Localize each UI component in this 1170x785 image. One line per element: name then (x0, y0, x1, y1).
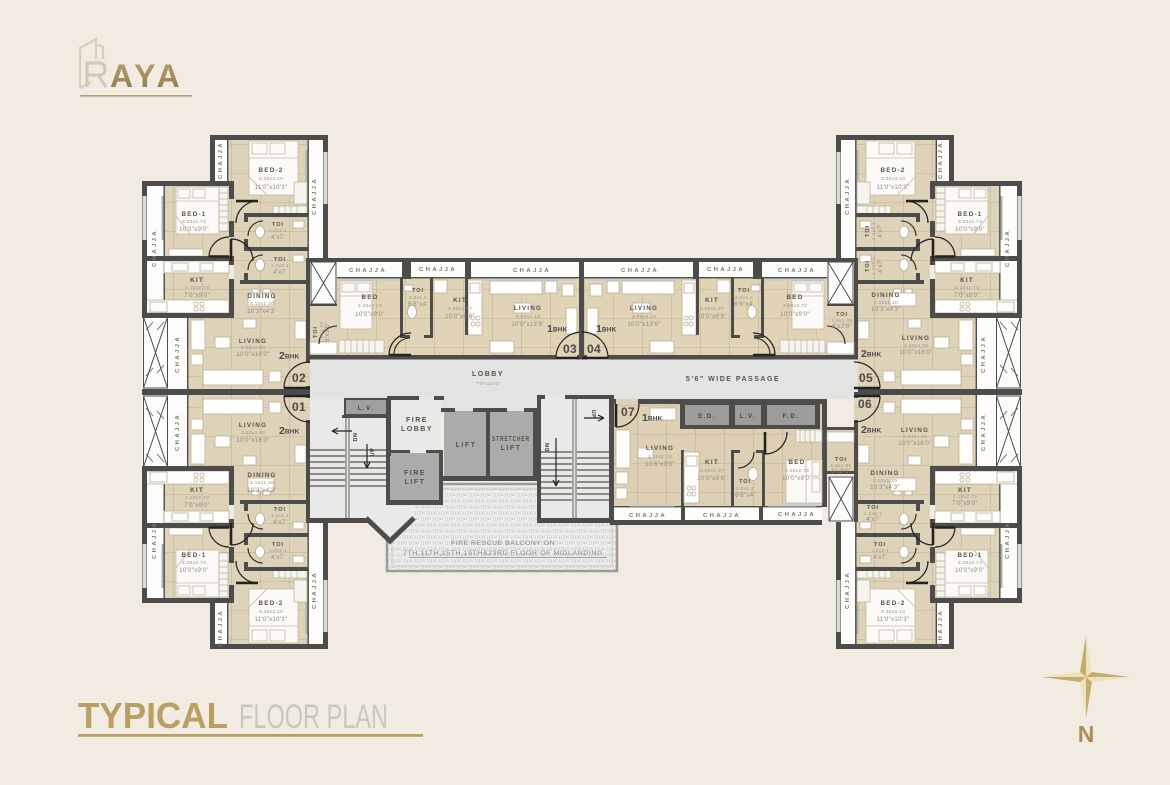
svg-text:4'x7': 4'x7' (866, 516, 880, 523)
svg-text:LIVING: LIVING (514, 305, 542, 312)
svg-text:LIVING: LIVING (646, 445, 674, 452)
svg-text:BED: BED (787, 294, 804, 301)
svg-text:CHAJJA: CHAJJA (175, 335, 181, 373)
svg-text:CHAJJA: CHAJJA (703, 513, 741, 519)
svg-text:11'0"x10'3": 11'0"x10'3" (877, 184, 910, 191)
svg-text:TOI: TOI (835, 457, 847, 463)
svg-text:LIVING: LIVING (901, 427, 929, 434)
svg-text:CHAJJA: CHAJJA (152, 521, 158, 559)
svg-text:KIT: KIT (190, 277, 204, 284)
svg-text:5'6" WIDE PASSAGE: 5'6" WIDE PASSAGE (686, 376, 780, 383)
svg-text:3.03x2.73: 3.03x2.73 (958, 219, 982, 225)
svg-text:KIT: KIT (453, 297, 467, 304)
svg-text:13'6"x9'0": 13'6"x9'0" (645, 461, 675, 468)
svg-text:CHAJJA: CHAJJA (312, 177, 318, 215)
svg-text:CHAJJA: CHAJJA (845, 571, 851, 609)
svg-text:BED-2: BED-2 (881, 600, 906, 607)
svg-text:4'x7': 4'x7' (271, 554, 285, 561)
svg-text:LIVING: LIVING (902, 335, 930, 342)
svg-text:4.11x2.73: 4.11x2.73 (648, 454, 672, 460)
svg-text:LIVING: LIVING (239, 422, 267, 429)
svg-text:CHAJJA: CHAJJA (938, 609, 944, 647)
svg-text:DINING: DINING (247, 293, 276, 300)
svg-text:7'0"x12'6": 7'0"x12'6" (476, 381, 500, 387)
svg-text:10'0"x6'6": 10'0"x6'6" (697, 313, 727, 320)
svg-text:3.35x3.10: 3.35x3.10 (881, 609, 905, 615)
svg-text:TOI: TOI (274, 257, 286, 263)
svg-text:DN: DN (353, 433, 359, 442)
svg-text:6'6"x4': 6'6"x4' (735, 492, 755, 499)
svg-text:10'0"x9'0": 10'0"x9'0" (780, 311, 810, 318)
svg-text:10'0"x9'0": 10'0"x9'0" (179, 567, 209, 574)
svg-text:FIRE RESCUE BALCONY ON: FIRE RESCUE BALCONY ON (451, 540, 555, 547)
svg-text:7'0"x9'0": 7'0"x9'0" (184, 502, 210, 509)
svg-text:01: 01 (292, 400, 306, 414)
svg-text:TOI: TOI (739, 479, 751, 485)
svg-text:CHAJJA: CHAJJA (1005, 521, 1011, 559)
svg-text:4'x7': 4'x7' (877, 259, 884, 273)
svg-text:DN: DN (545, 443, 551, 452)
svg-text:CHAJJA: CHAJJA (218, 141, 224, 179)
svg-text:6'6"x4': 6'6"x4' (734, 301, 754, 308)
svg-text:KIT: KIT (705, 459, 719, 466)
svg-text:10'0"x9'0": 10'0"x9'0" (955, 567, 985, 574)
svg-text:10'0"x16'0": 10'0"x16'0" (236, 351, 269, 358)
svg-text:10'3"x4'3": 10'3"x4'3" (870, 484, 900, 491)
svg-text:02: 02 (292, 371, 306, 385)
svg-text:CHAJJA: CHAJJA (349, 268, 387, 274)
svg-text:4'x7': 4'x7' (271, 234, 285, 241)
svg-text:CHAJJA: CHAJJA (621, 268, 659, 274)
svg-text:3.00x4.10: 3.00x4.10 (632, 314, 656, 320)
svg-text:KIT: KIT (960, 277, 974, 284)
svg-text:3.03x2.73: 3.03x2.73 (958, 560, 982, 566)
svg-text:LIVING: LIVING (630, 305, 658, 312)
svg-text:FIRE: FIRE (406, 417, 428, 424)
svg-text:DINING: DINING (247, 472, 276, 479)
svg-text:10'0"x16'0": 10'0"x16'0" (899, 349, 932, 356)
svg-text:10'3"x4'3": 10'3"x4'3" (247, 487, 277, 494)
svg-text:TOI: TOI (272, 542, 284, 548)
svg-text:7'0"x9'0": 7'0"x9'0" (184, 292, 210, 299)
svg-text:3.03x4.90: 3.03x4.90 (241, 430, 265, 436)
svg-text:N: N (1078, 721, 1095, 747)
svg-text:10'3"x4'3": 10'3"x4'3" (871, 306, 901, 313)
svg-text:L.V.: L.V. (740, 414, 756, 420)
svg-text:CHAJJA: CHAJJA (981, 413, 987, 451)
svg-text:6'6"x4': 6'6"x4' (408, 301, 428, 308)
svg-text:CHAJJA: CHAJJA (629, 513, 667, 519)
svg-text:FIRE: FIRE (404, 470, 426, 477)
svg-text:CHAJJA: CHAJJA (152, 229, 158, 267)
svg-text:4'x7': 4'x7' (877, 224, 884, 238)
svg-text:LIVING: LIVING (239, 338, 267, 345)
svg-text:TOI: TOI (867, 505, 879, 511)
svg-text:BED: BED (789, 459, 806, 466)
svg-text:4'x7': 4'x7' (873, 554, 887, 561)
svg-text:KIT: KIT (190, 487, 204, 494)
svg-text:BED-1: BED-1 (182, 211, 207, 218)
svg-text:LIFT: LIFT (501, 445, 522, 452)
svg-text:CHAJJA: CHAJJA (175, 413, 181, 451)
svg-text:STRETCHER: STRETCHER (492, 436, 530, 443)
svg-text:TOI: TOI (274, 507, 286, 513)
svg-text:6'x3'6": 6'x3'6" (832, 323, 852, 330)
svg-text:TOI: TOI (865, 225, 871, 237)
svg-text:3.35x3.10: 3.35x3.10 (259, 609, 283, 615)
svg-text:3.10x1.30: 3.10x1.30 (250, 301, 274, 307)
svg-text:7'0"x9'0": 7'0"x9'0" (954, 292, 980, 299)
svg-text:3.00x2.73: 3.00x2.73 (783, 303, 807, 309)
svg-text:CHAJJA: CHAJJA (938, 141, 944, 179)
svg-text:10'0"x16'0": 10'0"x16'0" (236, 437, 269, 444)
svg-text:BED-2: BED-2 (259, 600, 284, 607)
svg-text:4'x7': 4'x7' (273, 519, 287, 526)
svg-text:11'0"x10'3": 11'0"x10'3" (255, 616, 288, 623)
svg-text:BED: BED (362, 294, 379, 301)
svg-text:10'3"x4'3": 10'3"x4'3" (247, 308, 277, 315)
svg-text:CHAJJA: CHAJJA (981, 335, 987, 373)
svg-text:2.10x2.73: 2.10x2.73 (185, 495, 209, 501)
svg-text:04: 04 (587, 342, 601, 356)
svg-text:DINING: DINING (871, 292, 900, 299)
svg-text:10'0"x13'6": 10'0"x13'6" (511, 321, 544, 328)
svg-text:CHAJJA: CHAJJA (419, 267, 457, 273)
svg-text:2.10x2.73: 2.10x2.73 (955, 285, 979, 291)
svg-text:TOI: TOI (313, 326, 319, 338)
svg-text:10'0"x9'0": 10'0"x9'0" (782, 475, 812, 482)
svg-text:10'0"x6'6": 10'0"x6'6" (697, 475, 727, 482)
svg-text:6'x3'6": 6'x3'6" (831, 468, 851, 475)
svg-text:3.00x2.73: 3.00x2.73 (358, 303, 382, 309)
svg-text:2.10x2.73: 2.10x2.73 (185, 285, 209, 291)
svg-text:TYPICAL: TYPICAL (78, 695, 228, 736)
svg-text:10'0"x9'0": 10'0"x9'0" (355, 311, 385, 318)
svg-text:LIFT: LIFT (456, 442, 477, 449)
svg-text:11'0"x10'3": 11'0"x10'3" (255, 184, 288, 191)
svg-text:L.V.: L.V. (358, 406, 374, 412)
svg-text:F.D.: F.D. (783, 414, 800, 420)
svg-text:10'0"x13'6": 10'0"x13'6" (627, 321, 660, 328)
svg-text:CHAJJA: CHAJJA (1005, 229, 1011, 267)
svg-text:BED-2: BED-2 (881, 167, 906, 174)
svg-text:10'0"x9'0": 10'0"x9'0" (179, 226, 209, 233)
svg-text:CHAJJA: CHAJJA (845, 177, 851, 215)
svg-text:UP: UP (590, 410, 596, 419)
svg-text:10'0"x9'0": 10'0"x9'0" (955, 226, 985, 233)
svg-text:FLOOR PLAN: FLOOR PLAN (239, 698, 388, 736)
svg-text:05: 05 (859, 371, 873, 385)
svg-text:LOBBY: LOBBY (472, 371, 504, 378)
svg-text:CHAJJA: CHAJJA (778, 512, 816, 518)
svg-text:TOI: TOI (836, 312, 848, 318)
svg-text:TOI: TOI (272, 222, 284, 228)
svg-text:LIFT: LIFT (405, 479, 426, 486)
svg-text:3.35x3.10: 3.35x3.10 (259, 176, 283, 182)
svg-text:3.00x1.97: 3.00x1.97 (700, 468, 724, 474)
svg-text:TOI: TOI (874, 542, 886, 548)
svg-text:UP: UP (370, 448, 376, 457)
svg-text:CHAJJA: CHAJJA (778, 268, 816, 274)
svg-text:KIT: KIT (958, 487, 972, 494)
svg-text:3.03x2.73: 3.03x2.73 (182, 219, 206, 225)
svg-text:6'x3'6": 6'x3'6" (324, 322, 331, 342)
svg-text:TOI: TOI (865, 260, 871, 272)
svg-text:3.00x4.10: 3.00x4.10 (516, 314, 540, 320)
svg-text:CHAJJA: CHAJJA (707, 267, 745, 273)
svg-text:AYA: AYA (110, 58, 184, 94)
svg-text:CHAJJA: CHAJJA (513, 268, 551, 274)
svg-text:3.00x1.97: 3.00x1.97 (700, 306, 724, 312)
svg-text:TOI: TOI (412, 288, 424, 294)
svg-text:LOBBY: LOBBY (401, 426, 433, 433)
svg-text:TOI: TOI (738, 288, 750, 294)
svg-text:10'0"x16'0": 10'0"x16'0" (898, 440, 931, 447)
svg-text:4'x7': 4'x7' (273, 269, 287, 276)
svg-text:7'0"x9'0": 7'0"x9'0" (952, 500, 978, 507)
svg-text:06: 06 (858, 397, 872, 411)
svg-text:11'0"x10'3": 11'0"x10'3" (877, 616, 910, 623)
svg-text:KIT: KIT (705, 297, 719, 304)
svg-text:3.00x2.73: 3.00x2.73 (785, 468, 809, 474)
svg-text:3.00x1.97: 3.00x1.97 (448, 306, 472, 312)
svg-text:DINING: DINING (870, 470, 899, 477)
svg-text:03: 03 (563, 342, 577, 356)
svg-text:07: 07 (621, 405, 635, 419)
svg-text:3.03x2.73: 3.03x2.73 (182, 560, 206, 566)
svg-text:BED-2: BED-2 (259, 167, 284, 174)
svg-text:BED-1: BED-1 (958, 211, 983, 218)
svg-text:7TH,11TH,15TH,19TH&23RD FLOOR: 7TH,11TH,15TH,19TH&23RD FLOOR OF MIDLAND… (403, 550, 603, 557)
svg-text:3.10x1.30: 3.10x1.30 (250, 480, 274, 486)
svg-text:E.D.: E.D. (698, 414, 716, 420)
svg-text:CHAJJA: CHAJJA (218, 609, 224, 647)
svg-text:10'0"x6'6": 10'0"x6'6" (445, 313, 475, 320)
svg-text:BED-1: BED-1 (958, 552, 983, 559)
svg-text:CHAJJA: CHAJJA (312, 571, 318, 609)
svg-text:3.35x3.10: 3.35x3.10 (881, 176, 905, 182)
svg-text:BED-1: BED-1 (182, 552, 207, 559)
